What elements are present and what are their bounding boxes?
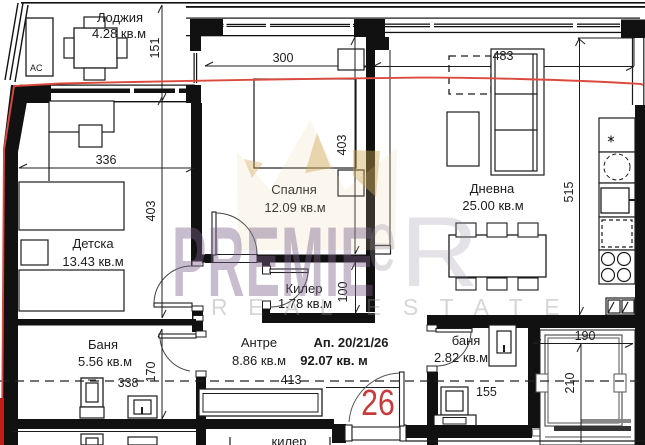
svg-text:300: 300 [273, 51, 294, 65]
svg-text:Антре: Антре [241, 335, 277, 350]
svg-text:92.07 кв. м: 92.07 кв. м [300, 353, 367, 368]
svg-text:Ап. 20/21/26: Ап. 20/21/26 [313, 335, 388, 350]
svg-text:170: 170 [144, 362, 158, 383]
svg-text:413: 413 [281, 373, 302, 387]
svg-text:баня: баня [452, 333, 481, 348]
svg-text:338: 338 [118, 376, 139, 390]
svg-text:Баня: Баня [88, 337, 118, 352]
svg-text:2.82 кв.м: 2.82 кв.м [434, 350, 488, 365]
svg-text:155: 155 [476, 385, 497, 399]
svg-text:ESTATE: ESTATE [366, 294, 581, 320]
svg-text:13.43 кв.м: 13.43 кв.м [62, 254, 123, 269]
svg-text:e: e [368, 194, 396, 289]
svg-text:151: 151 [148, 38, 162, 59]
svg-text:26: 26 [361, 384, 395, 424]
svg-text:190: 190 [575, 329, 596, 343]
svg-text:336: 336 [96, 153, 117, 167]
svg-text:Детска: Детска [72, 236, 114, 251]
svg-text:Дневна: Дневна [470, 181, 515, 196]
svg-text:483: 483 [493, 49, 514, 63]
svg-text:5.56 кв.м: 5.56 кв.м [78, 354, 132, 369]
svg-text:515: 515 [562, 182, 576, 203]
svg-text:Лоджия: Лоджия [97, 10, 143, 25]
svg-text:4.28 кв.м: 4.28 кв.м [92, 26, 146, 41]
svg-text:8.86 кв.м: 8.86 кв.м [232, 353, 286, 368]
svg-text:REAL: REAL [211, 294, 353, 320]
svg-text:R: R [400, 198, 479, 308]
svg-text:403: 403 [144, 201, 158, 222]
svg-text:403: 403 [335, 135, 349, 156]
svg-text:AC: AC [30, 63, 43, 73]
svg-text:210: 210 [563, 373, 577, 394]
